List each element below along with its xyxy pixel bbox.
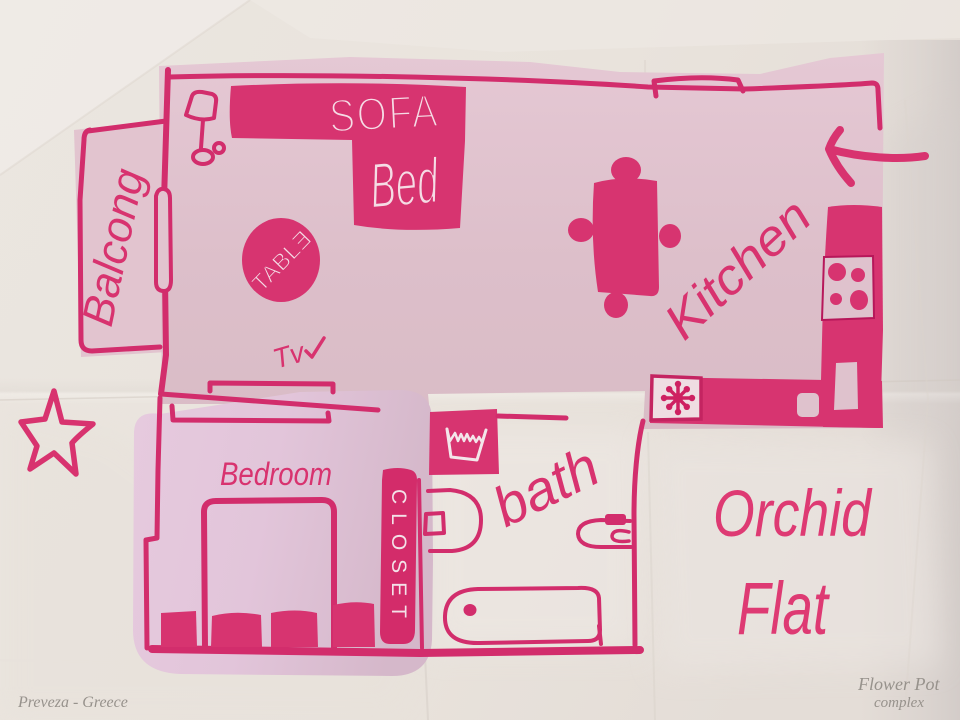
svg-text:Bedroom: Bedroom (220, 456, 332, 492)
svg-text:Flat: Flat (737, 567, 831, 650)
svg-text:SOFA: SOFA (328, 84, 441, 142)
svg-text:Bed: Bed (367, 144, 442, 222)
svg-text:Orchid: Orchid (713, 476, 873, 550)
svg-text:Preveza - Greece: Preveza - Greece (17, 694, 128, 711)
svg-text:CLOSET: CLOSET (387, 489, 410, 627)
svg-text:Flower Pot: Flower Pot (857, 674, 940, 694)
svg-text:complex: complex (874, 695, 924, 711)
